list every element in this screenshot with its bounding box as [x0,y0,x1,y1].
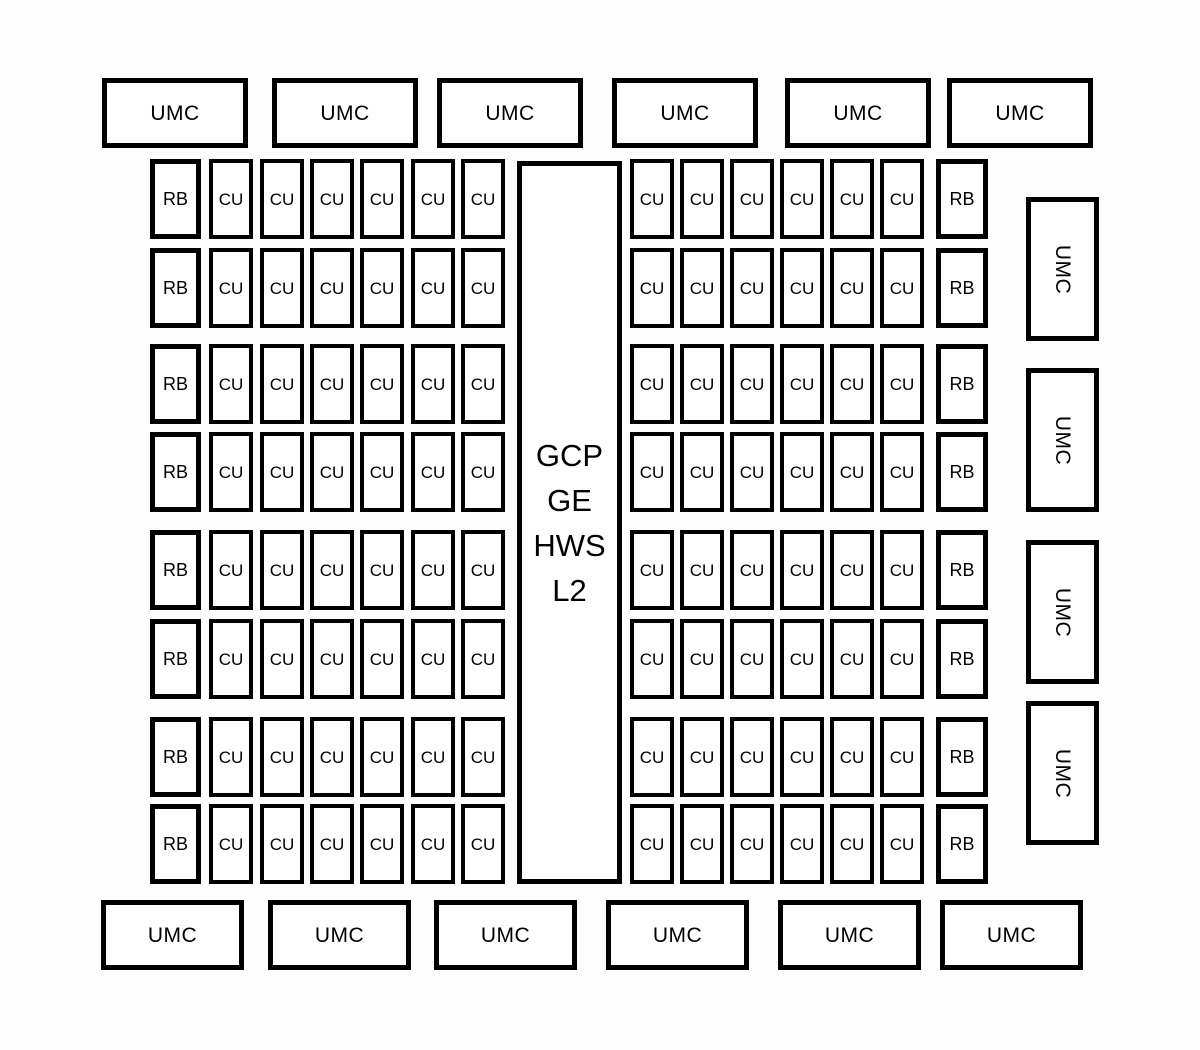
cu-right-row1-col6: CU [880,159,924,239]
cu-right-row5-col5: CU [830,530,874,610]
cu-right-row2-col5: CU [830,248,874,328]
cu-left-row6-col1: CU [209,619,253,699]
cu-left-row6-col4-label: CU [370,651,395,668]
cu-right-row6-col1: CU [630,619,674,699]
cu-right-row4-col4: CU [780,432,824,512]
cu-left-row5-col6: CU [461,530,505,610]
cu-left-row7-col1-label: CU [219,749,244,766]
cu-left-row3-col3-label: CU [320,376,345,393]
cu-left-row1-col5: CU [411,159,455,239]
cu-left-row8-col6: CU [461,804,505,884]
rb-right-row4: RB [936,432,988,512]
rb-right-row7-label: RB [949,748,974,766]
cu-left-row7-col6: CU [461,717,505,797]
cu-left-row1-col4-label: CU [370,191,395,208]
umc-bottom-1-label: UMC [148,925,197,946]
cu-left-row7-col4-label: CU [370,749,395,766]
rb-left-row8: RB [150,804,201,884]
rb-left-row5: RB [150,530,201,610]
cu-left-row2-col3-label: CU [320,280,345,297]
rb-right-row1: RB [936,159,988,239]
cu-right-row1-col3: CU [730,159,774,239]
cu-right-row7-col2: CU [680,717,724,797]
umc-bottom-4-label: UMC [653,925,702,946]
cu-right-row8-col3-label: CU [740,836,765,853]
cu-right-row5-col1-label: CU [640,562,665,579]
cu-left-row4-col4: CU [360,432,404,512]
cu-right-row1-col5-label: CU [840,191,865,208]
rb-left-row5-label: RB [163,561,188,579]
cu-right-row4-col2-label: CU [690,464,715,481]
cu-left-row2-col6: CU [461,248,505,328]
cu-left-row4-col4-label: CU [370,464,395,481]
rb-left-row1: RB [150,159,201,239]
cu-left-row4-col1-label: CU [219,464,244,481]
cu-left-row8-col4: CU [360,804,404,884]
cu-left-row2-col4-label: CU [370,280,395,297]
cu-left-row3-col5-label: CU [421,376,446,393]
cu-left-row7-col3: CU [310,717,354,797]
umc-bottom-5: UMC [778,900,921,970]
cu-right-row4-col3-label: CU [740,464,765,481]
cu-right-row1-col1: CU [630,159,674,239]
cu-left-row3-col6: CU [461,344,505,424]
cu-right-row3-col6: CU [880,344,924,424]
cu-right-row3-col4-label: CU [790,376,815,393]
cu-left-row5-col2-label: CU [270,562,295,579]
rb-right-row3-label: RB [949,375,974,393]
cu-right-row8-col5: CU [830,804,874,884]
cu-left-row8-col5-label: CU [421,836,446,853]
cu-left-row7-col1: CU [209,717,253,797]
cu-right-row8-col4-label: CU [790,836,815,853]
center-label-gcp: GCP [536,433,603,478]
umc-bottom-2-label: UMC [315,925,364,946]
umc-right-2: UMC [1026,368,1099,512]
cu-right-row6-col2: CU [680,619,724,699]
rb-right-row7: RB [936,717,988,797]
cu-left-row2-col5: CU [411,248,455,328]
cu-right-row7-col4-label: CU [790,749,815,766]
cu-left-row2-col3: CU [310,248,354,328]
rb-right-row4-label: RB [949,463,974,481]
cu-left-row7-col6-label: CU [471,749,496,766]
cu-right-row8-col2-label: CU [690,836,715,853]
cu-right-row7-col5-label: CU [840,749,865,766]
rb-left-row1-label: RB [163,190,188,208]
umc-right-2-label: UMC [1052,415,1073,464]
cu-right-row4-col4-label: CU [790,464,815,481]
cu-right-row2-col4: CU [780,248,824,328]
cu-right-row2-col5-label: CU [840,280,865,297]
chip-floorplan-diagram: UMCUMCUMCUMCUMCUMCUMCUMCUMCUMCUMCUMCUMCU… [0,0,1200,1050]
cu-left-row3-col4: CU [360,344,404,424]
cu-left-row8-col2: CU [260,804,304,884]
cu-left-row8-col2-label: CU [270,836,295,853]
cu-left-row3-col2-label: CU [270,376,295,393]
cu-right-row7-col2-label: CU [690,749,715,766]
cu-right-row3-col2: CU [680,344,724,424]
umc-right-3-label: UMC [1052,587,1073,636]
cu-left-row1-col2: CU [260,159,304,239]
center-label-ge: GE [547,478,592,523]
cu-right-row5-col2: CU [680,530,724,610]
cu-left-row5-col5: CU [411,530,455,610]
rb-right-row3: RB [936,344,988,424]
cu-left-row4-col6: CU [461,432,505,512]
cu-right-row1-col1-label: CU [640,191,665,208]
cu-left-row1-col1: CU [209,159,253,239]
rb-right-row6: RB [936,619,988,699]
cu-left-row4-col5-label: CU [421,464,446,481]
cu-right-row4-col6-label: CU [890,464,915,481]
cu-left-row1-col3-label: CU [320,191,345,208]
cu-right-row8-col3: CU [730,804,774,884]
umc-top-6-label: UMC [995,103,1044,124]
cu-left-row8-col1-label: CU [219,836,244,853]
cu-right-row1-col5: CU [830,159,874,239]
cu-right-row7-col3: CU [730,717,774,797]
cu-right-row8-col1: CU [630,804,674,884]
cu-right-row3-col3: CU [730,344,774,424]
rb-left-row6-label: RB [163,650,188,668]
cu-right-row3-col1: CU [630,344,674,424]
rb-left-row7-label: RB [163,748,188,766]
cu-left-row3-col4-label: CU [370,376,395,393]
center-block-gcp-ge-hws-l2: GCP GE HWS L2 [517,161,622,884]
cu-right-row6-col3-label: CU [740,651,765,668]
cu-left-row2-col5-label: CU [421,280,446,297]
center-label-hws: HWS [533,523,605,568]
umc-right-3: UMC [1026,540,1099,684]
rb-right-row1-label: RB [949,190,974,208]
umc-top-3-label: UMC [485,103,534,124]
umc-right-1: UMC [1026,197,1099,341]
cu-right-row7-col1: CU [630,717,674,797]
cu-right-row8-col5-label: CU [840,836,865,853]
cu-left-row5-col4: CU [360,530,404,610]
cu-left-row1-col6-label: CU [471,191,496,208]
cu-left-row6-col5: CU [411,619,455,699]
cu-right-row7-col1-label: CU [640,749,665,766]
umc-top-5-label: UMC [833,103,882,124]
cu-right-row6-col6: CU [880,619,924,699]
cu-right-row5-col3-label: CU [740,562,765,579]
cu-left-row2-col4: CU [360,248,404,328]
cu-left-row5-col6-label: CU [471,562,496,579]
umc-top-1: UMC [102,78,248,148]
cu-left-row4-col1: CU [209,432,253,512]
cu-left-row6-col3-label: CU [320,651,345,668]
cu-right-row6-col4-label: CU [790,651,815,668]
cu-right-row3-col3-label: CU [740,376,765,393]
cu-left-row7-col4: CU [360,717,404,797]
cu-right-row5-col4: CU [780,530,824,610]
rb-left-row3-label: RB [163,375,188,393]
umc-bottom-4: UMC [606,900,749,970]
cu-left-row8-col5: CU [411,804,455,884]
umc-bottom-6-label: UMC [987,925,1036,946]
rb-left-row6: RB [150,619,201,699]
cu-left-row6-col4: CU [360,619,404,699]
cu-right-row6-col5: CU [830,619,874,699]
cu-right-row4-col6: CU [880,432,924,512]
cu-right-row2-col1: CU [630,248,674,328]
cu-left-row1-col2-label: CU [270,191,295,208]
cu-left-row5-col4-label: CU [370,562,395,579]
rb-right-row6-label: RB [949,650,974,668]
center-label-l2: L2 [552,568,586,613]
cu-right-row4-col5: CU [830,432,874,512]
cu-right-row2-col4-label: CU [790,280,815,297]
cu-right-row7-col3-label: CU [740,749,765,766]
cu-left-row2-col2-label: CU [270,280,295,297]
cu-left-row4-col2: CU [260,432,304,512]
cu-left-row4-col6-label: CU [471,464,496,481]
cu-right-row3-col4: CU [780,344,824,424]
umc-bottom-2: UMC [268,900,411,970]
cu-left-row2-col1: CU [209,248,253,328]
cu-right-row8-col6-label: CU [890,836,915,853]
cu-left-row4-col2-label: CU [270,464,295,481]
cu-left-row8-col1: CU [209,804,253,884]
cu-right-row8-col4: CU [780,804,824,884]
cu-left-row1-col6: CU [461,159,505,239]
cu-right-row4-col3: CU [730,432,774,512]
umc-top-4: UMC [612,78,758,148]
cu-right-row2-col3: CU [730,248,774,328]
umc-bottom-1: UMC [101,900,244,970]
umc-bottom-6: UMC [940,900,1083,970]
rb-left-row2: RB [150,248,201,328]
rb-right-row5-label: RB [949,561,974,579]
cu-right-row5-col6-label: CU [890,562,915,579]
cu-left-row4-col5: CU [411,432,455,512]
umc-top-5: UMC [785,78,931,148]
cu-left-row8-col3-label: CU [320,836,345,853]
cu-left-row7-col5: CU [411,717,455,797]
cu-right-row1-col4: CU [780,159,824,239]
cu-left-row2-col6-label: CU [471,280,496,297]
umc-top-2-label: UMC [320,103,369,124]
cu-left-row2-col1-label: CU [219,280,244,297]
rb-right-row8: RB [936,804,988,884]
cu-left-row5-col1-label: CU [219,562,244,579]
cu-right-row4-col1-label: CU [640,464,665,481]
cu-right-row2-col6-label: CU [890,280,915,297]
umc-right-4: UMC [1026,701,1099,845]
cu-left-row5-col3: CU [310,530,354,610]
cu-right-row4-col2: CU [680,432,724,512]
cu-right-row4-col1: CU [630,432,674,512]
cu-left-row5-col2: CU [260,530,304,610]
umc-top-1-label: UMC [150,103,199,124]
cu-left-row7-col2-label: CU [270,749,295,766]
rb-right-row5: RB [936,530,988,610]
cu-right-row6-col1-label: CU [640,651,665,668]
cu-right-row5-col3: CU [730,530,774,610]
rb-left-row4-label: RB [163,463,188,481]
cu-right-row2-col3-label: CU [740,280,765,297]
cu-right-row8-col2: CU [680,804,724,884]
cu-right-row3-col5: CU [830,344,874,424]
umc-top-3: UMC [437,78,583,148]
cu-right-row8-col6: CU [880,804,924,884]
cu-right-row6-col5-label: CU [840,651,865,668]
rb-left-row2-label: RB [163,279,188,297]
cu-right-row5-col5-label: CU [840,562,865,579]
cu-left-row1-col4: CU [360,159,404,239]
cu-left-row8-col6-label: CU [471,836,496,853]
cu-left-row6-col6-label: CU [471,651,496,668]
cu-right-row2-col1-label: CU [640,280,665,297]
cu-right-row6-col3: CU [730,619,774,699]
cu-left-row5-col5-label: CU [421,562,446,579]
cu-right-row5-col2-label: CU [690,562,715,579]
cu-right-row3-col1-label: CU [640,376,665,393]
cu-left-row5-col3-label: CU [320,562,345,579]
cu-left-row1-col1-label: CU [219,191,244,208]
cu-right-row1-col2: CU [680,159,724,239]
umc-top-2: UMC [272,78,418,148]
cu-right-row5-col6: CU [880,530,924,610]
cu-left-row3-col2: CU [260,344,304,424]
cu-left-row6-col6: CU [461,619,505,699]
cu-right-row6-col6-label: CU [890,651,915,668]
cu-left-row3-col5: CU [411,344,455,424]
rb-left-row7: RB [150,717,201,797]
umc-top-6: UMC [947,78,1093,148]
cu-left-row1-col3: CU [310,159,354,239]
cu-right-row7-col6-label: CU [890,749,915,766]
cu-right-row6-col2-label: CU [690,651,715,668]
cu-left-row6-col5-label: CU [421,651,446,668]
cu-left-row3-col1: CU [209,344,253,424]
cu-left-row1-col5-label: CU [421,191,446,208]
cu-left-row6-col1-label: CU [219,651,244,668]
cu-left-row8-col3: CU [310,804,354,884]
umc-right-1-label: UMC [1052,244,1073,293]
cu-left-row5-col1: CU [209,530,253,610]
cu-left-row6-col3: CU [310,619,354,699]
umc-right-4-label: UMC [1052,748,1073,797]
cu-left-row7-col2: CU [260,717,304,797]
cu-left-row4-col3: CU [310,432,354,512]
rb-right-row2-label: RB [949,279,974,297]
cu-right-row3-col2-label: CU [690,376,715,393]
umc-bottom-3: UMC [434,900,577,970]
cu-left-row2-col2: CU [260,248,304,328]
cu-left-row4-col3-label: CU [320,464,345,481]
cu-left-row3-col1-label: CU [219,376,244,393]
cu-right-row5-col4-label: CU [790,562,815,579]
cu-right-row2-col2: CU [680,248,724,328]
rb-right-row8-label: RB [949,835,974,853]
cu-left-row6-col2-label: CU [270,651,295,668]
cu-right-row1-col3-label: CU [740,191,765,208]
cu-left-row8-col4-label: CU [370,836,395,853]
cu-left-row7-col5-label: CU [421,749,446,766]
rb-left-row4: RB [150,432,201,512]
cu-right-row3-col6-label: CU [890,376,915,393]
umc-bottom-5-label: UMC [825,925,874,946]
umc-top-4-label: UMC [660,103,709,124]
rb-right-row2: RB [936,248,988,328]
cu-right-row1-col6-label: CU [890,191,915,208]
cu-left-row7-col3-label: CU [320,749,345,766]
cu-right-row7-col4: CU [780,717,824,797]
umc-bottom-3-label: UMC [481,925,530,946]
cu-right-row7-col6: CU [880,717,924,797]
cu-left-row3-col3: CU [310,344,354,424]
cu-right-row6-col4: CU [780,619,824,699]
cu-right-row3-col5-label: CU [840,376,865,393]
cu-right-row5-col1: CU [630,530,674,610]
cu-right-row4-col5-label: CU [840,464,865,481]
cu-right-row1-col2-label: CU [690,191,715,208]
cu-left-row6-col2: CU [260,619,304,699]
cu-right-row7-col5: CU [830,717,874,797]
cu-left-row3-col6-label: CU [471,376,496,393]
cu-right-row2-col2-label: CU [690,280,715,297]
rb-left-row3: RB [150,344,201,424]
cu-right-row2-col6: CU [880,248,924,328]
cu-right-row8-col1-label: CU [640,836,665,853]
rb-left-row8-label: RB [163,835,188,853]
cu-right-row1-col4-label: CU [790,191,815,208]
